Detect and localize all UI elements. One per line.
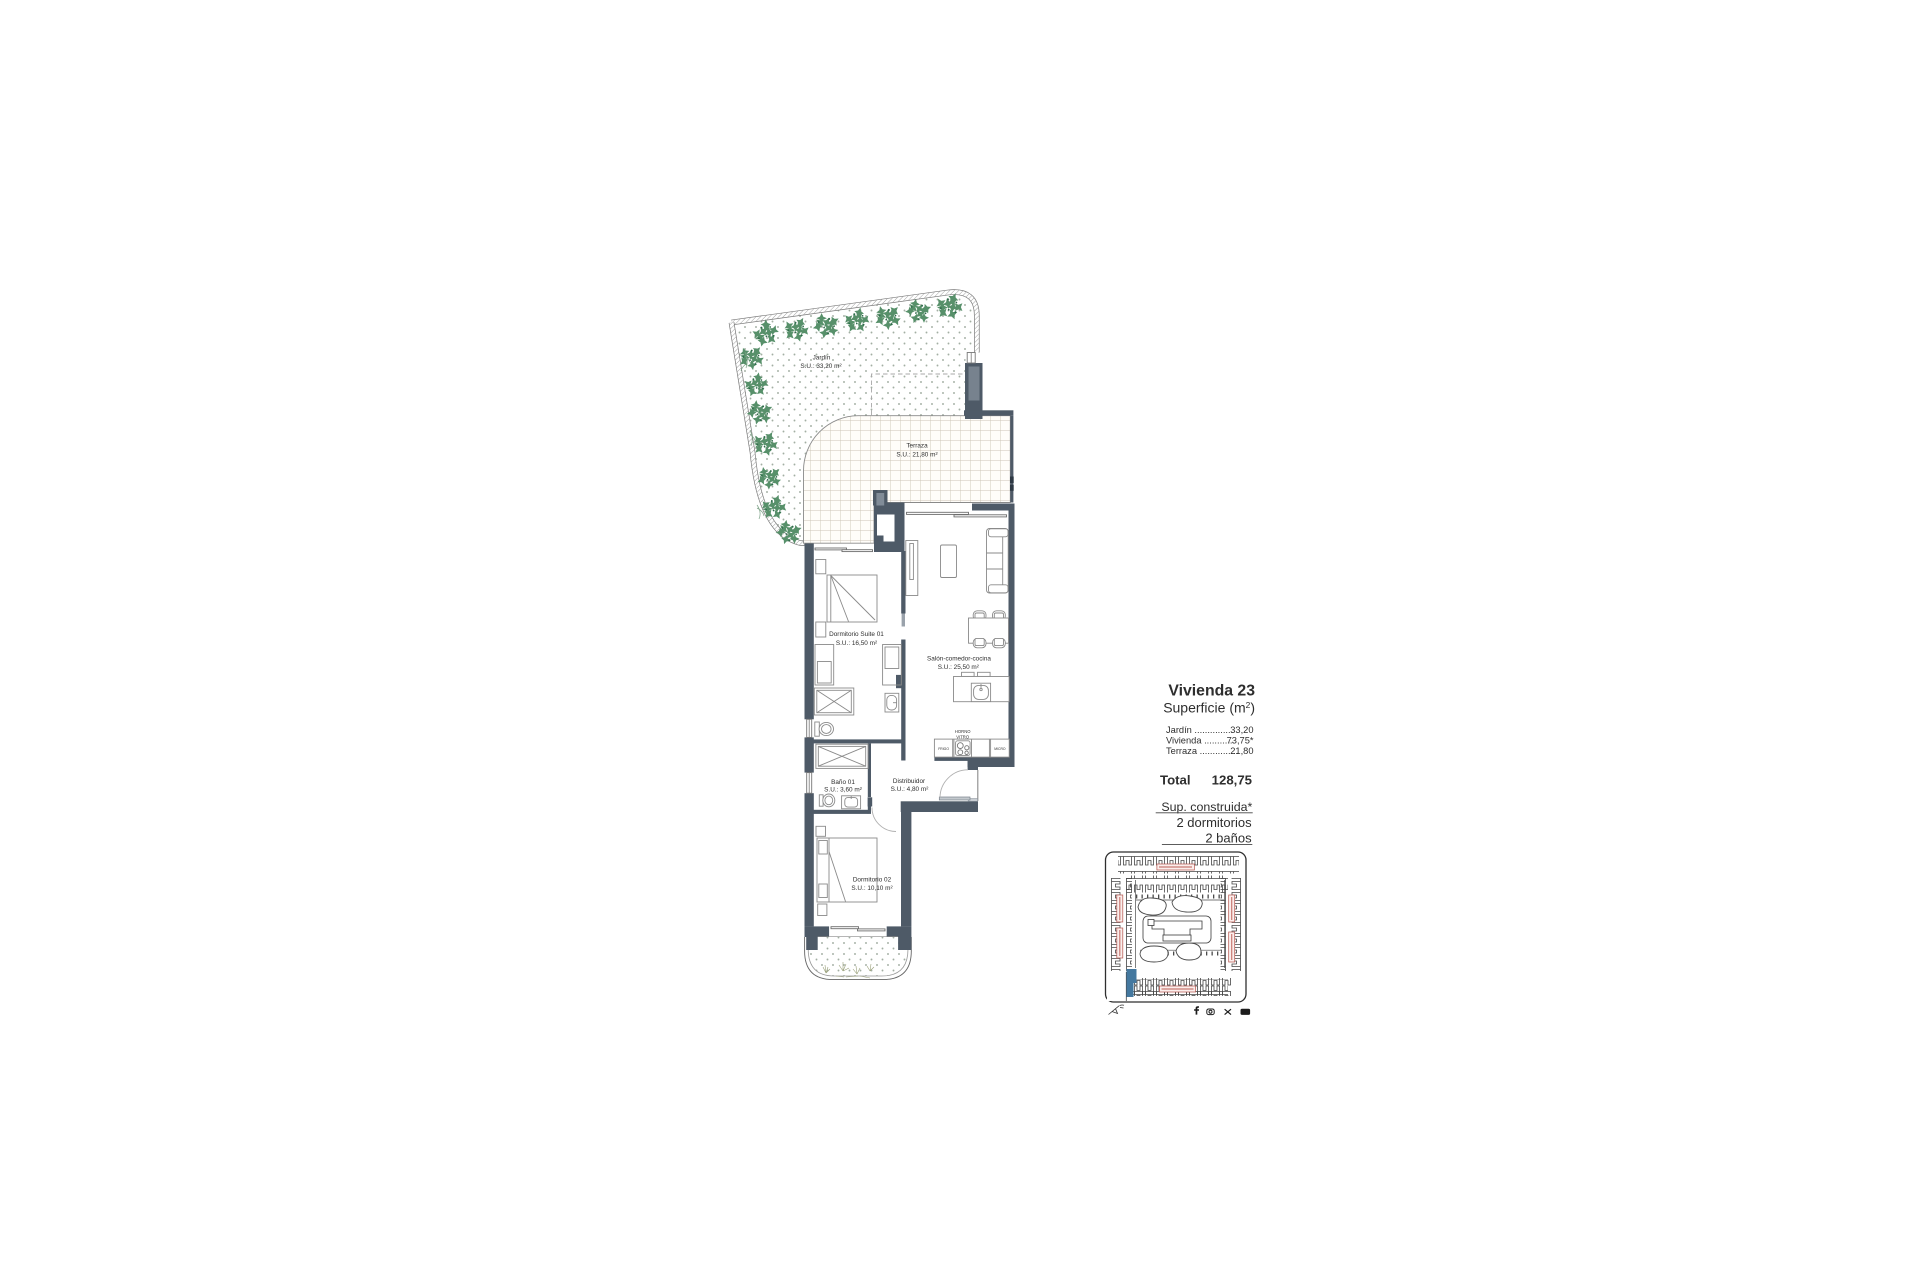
svg-text:S.U.: 16,50 m²: S.U.: 16,50 m² <box>836 640 877 647</box>
svg-text:33,20: 33,20 <box>1230 725 1253 735</box>
svg-text:128,75: 128,75 <box>1212 773 1252 788</box>
svg-text:Terraza ...............: Terraza ............... <box>1166 746 1238 756</box>
svg-text:S.U.: 3,60 m²: S.U.: 3,60 m² <box>824 787 862 794</box>
svg-text:Sup. construida*: Sup. construida* <box>1161 800 1252 814</box>
svg-text:Distribuidor: Distribuidor <box>893 778 926 785</box>
svg-text:S.U.: 25,50 m²: S.U.: 25,50 m² <box>938 664 979 671</box>
svg-text:MICRO: MICRO <box>994 747 1006 751</box>
svg-text:Superficie (m2): Superficie (m2) <box>1163 700 1255 716</box>
svg-text:FRIGO: FRIGO <box>938 747 949 751</box>
svg-text:2 dormitorios: 2 dormitorios <box>1176 815 1252 830</box>
svg-text:Vivienda ...........: Vivienda ........... <box>1166 736 1233 746</box>
svg-text:21,80: 21,80 <box>1230 746 1253 756</box>
svg-text:Baño 01: Baño 01 <box>831 779 855 786</box>
svg-text:Salón-comedor-cocina: Salón-comedor-cocina <box>927 655 991 662</box>
svg-text:S.U.: 10,10 m²: S.U.: 10,10 m² <box>851 885 892 892</box>
svg-text:Terraza: Terraza <box>906 443 928 450</box>
svg-text:S.U.: 21,80 m²: S.U.: 21,80 m² <box>896 452 937 459</box>
svg-text:Jardín ...............: Jardín ............... <box>1166 725 1233 735</box>
svg-text:Vivienda 23: Vivienda 23 <box>1168 683 1255 700</box>
svg-text:S.U.: 4,80 m²: S.U.: 4,80 m² <box>891 786 929 793</box>
svg-text:S.U.: 33,20 m²: S.U.: 33,20 m² <box>800 363 841 370</box>
svg-text:Jardín: Jardín <box>813 355 831 362</box>
svg-text:Dormitorio 02: Dormitorio 02 <box>853 877 892 884</box>
svg-text:Dormitorio Suite 01: Dormitorio Suite 01 <box>829 631 884 638</box>
svg-text:Total: Total <box>1160 773 1191 788</box>
svg-text:2 baños: 2 baños <box>1205 830 1252 845</box>
svg-text:73,75*: 73,75* <box>1227 736 1254 746</box>
svg-text:VITRO: VITRO <box>956 734 970 739</box>
